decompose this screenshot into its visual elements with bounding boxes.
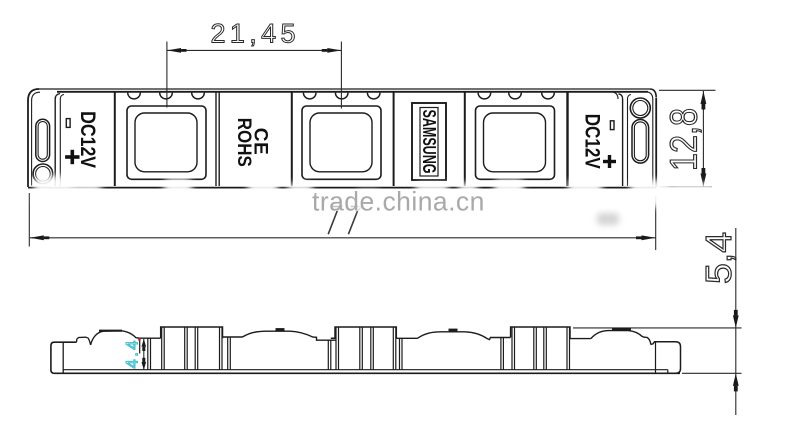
svg-text:4.4: 4.4 [123,341,141,369]
svg-text:5,4: 5,4 [698,232,739,284]
svg-text:12,8: 12,8 [663,108,705,171]
svg-text:DC12V: DC12V [76,111,99,168]
svg-text:21,45: 21,45 [211,19,296,49]
svg-text:DC12V: DC12V [580,114,603,169]
svg-text:trade.china.cn: trade.china.cn [312,187,485,217]
svg-text:ROHS: ROHS [233,118,254,167]
svg-text:SAMSUNG: SAMSUNG [419,110,439,174]
